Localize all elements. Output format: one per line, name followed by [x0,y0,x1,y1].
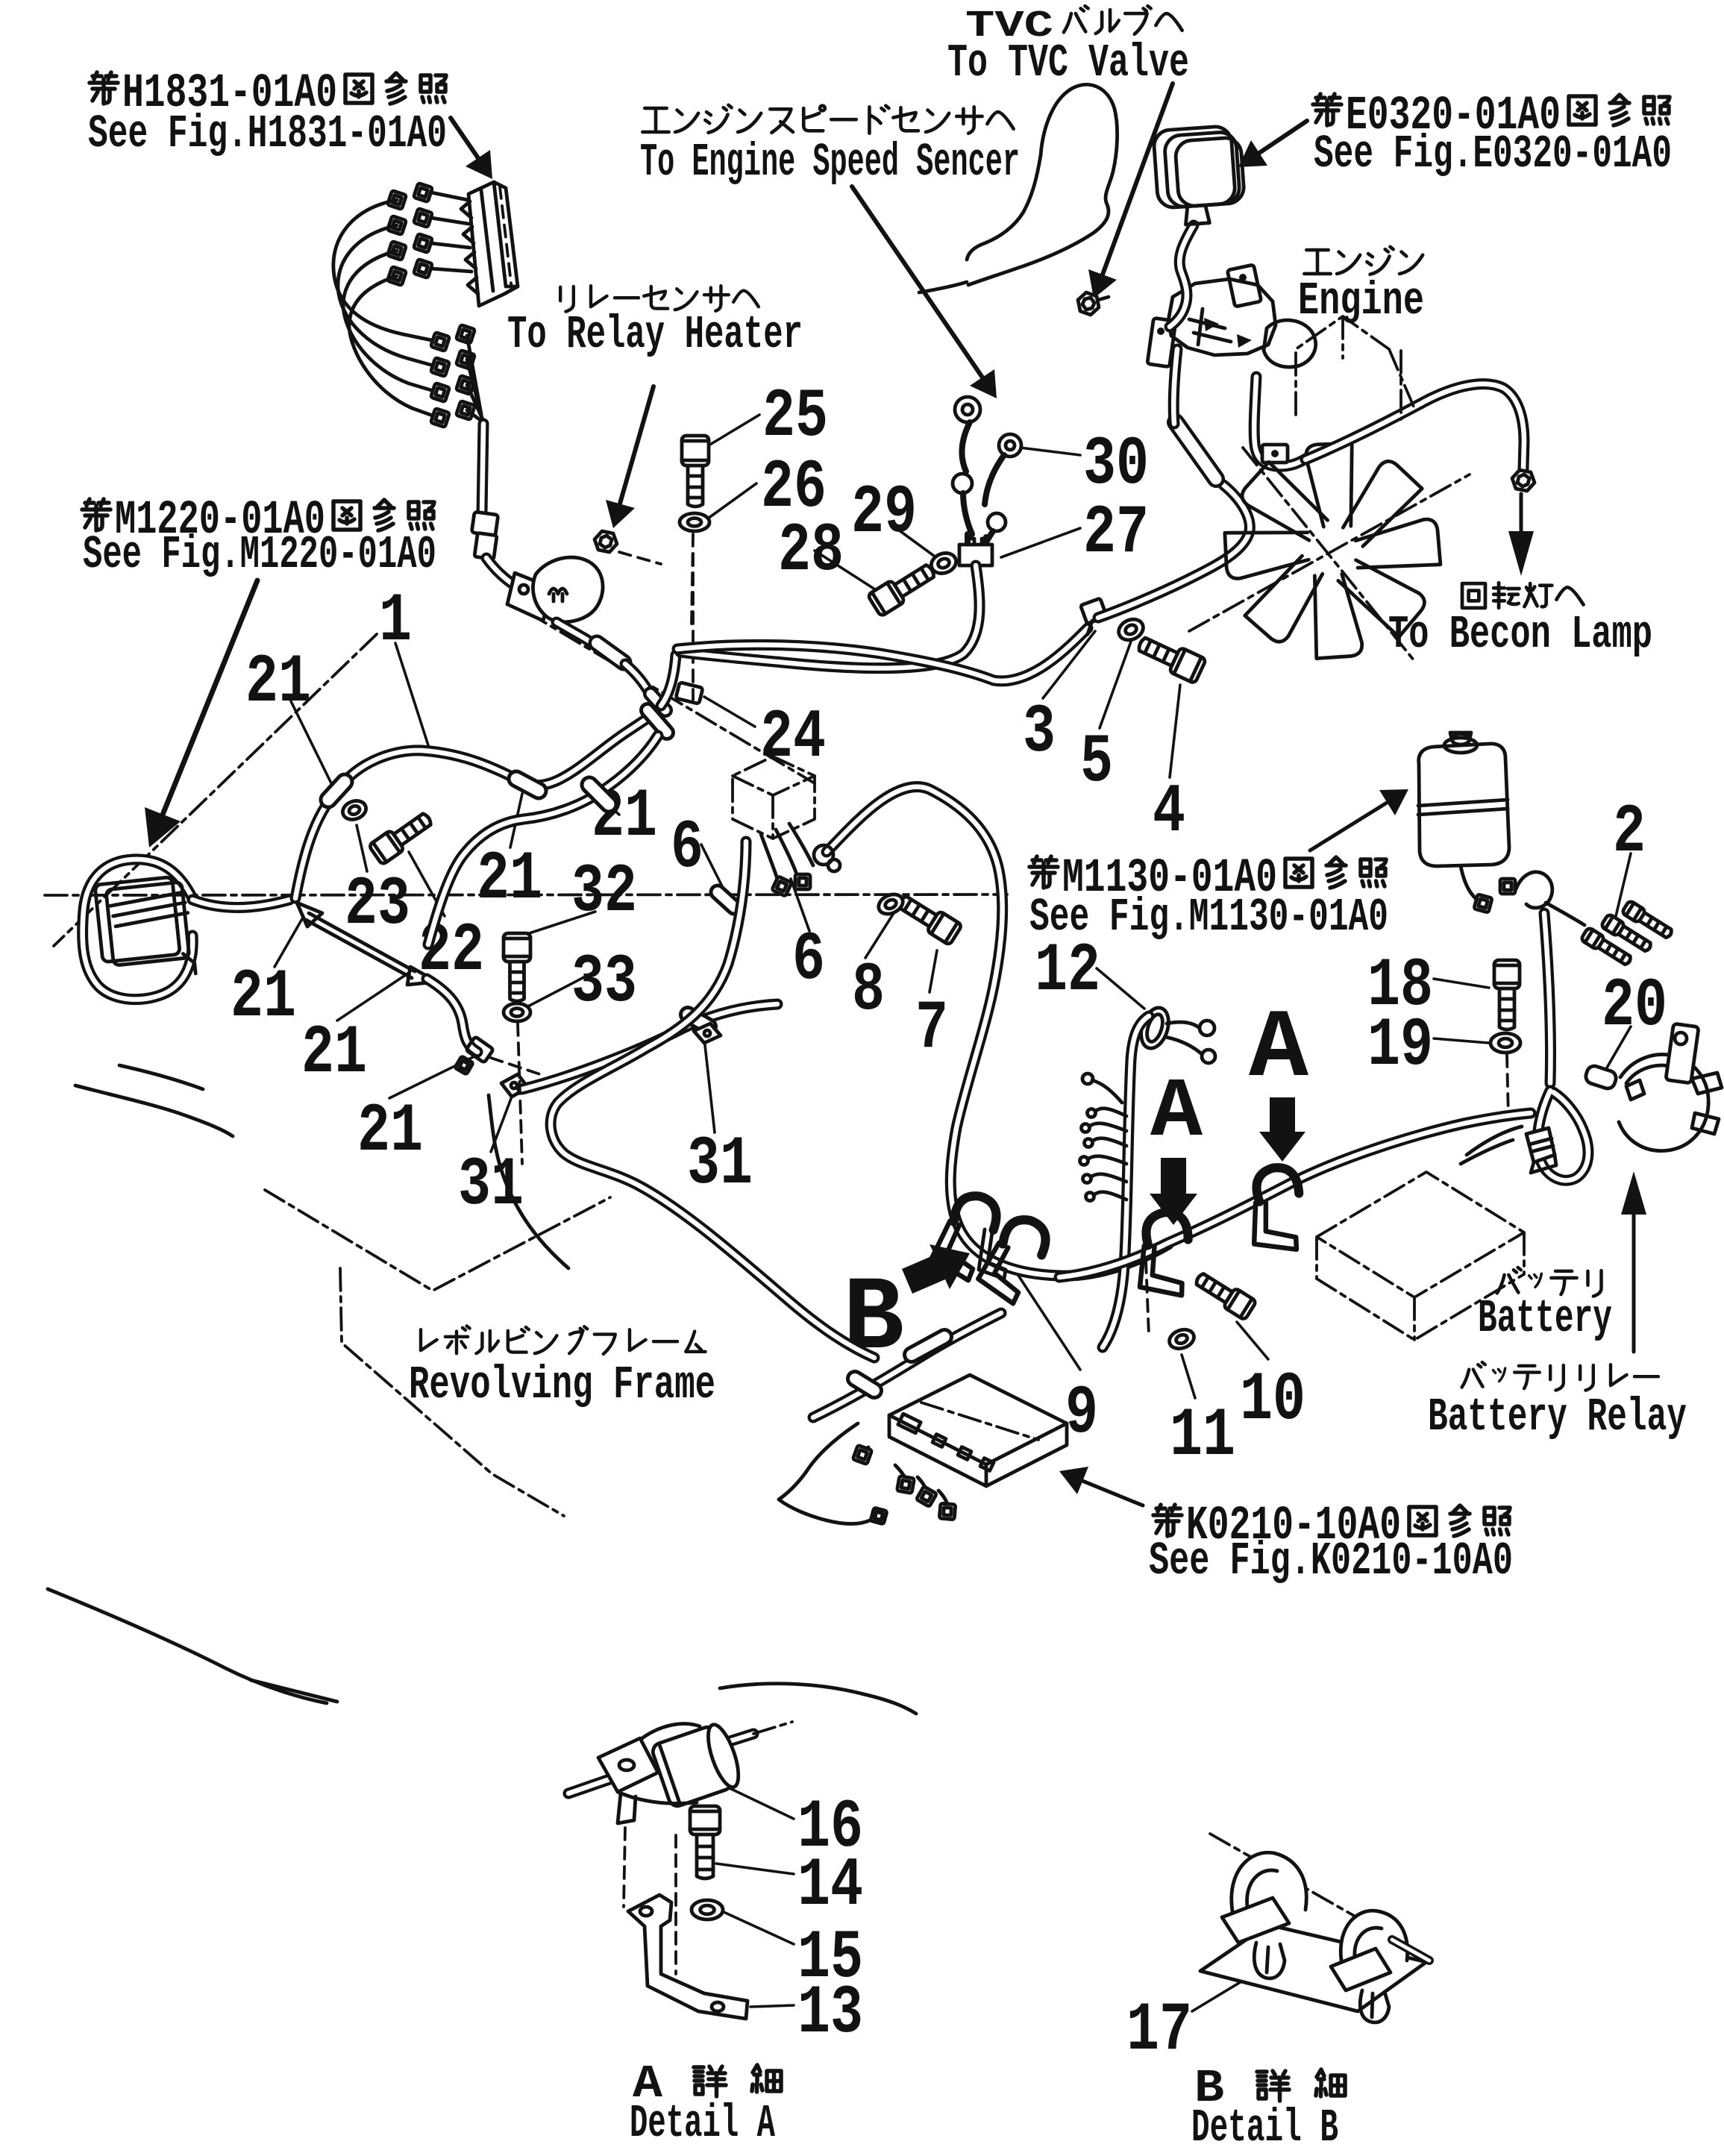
svg-text:A: A [1150,1065,1203,1160]
svg-text:12: 12 [1035,932,1100,1010]
svg-text:31: 31 [687,1125,753,1203]
svg-text:A: A [1249,995,1309,1105]
svg-text:32: 32 [571,853,637,931]
svg-text:See Fig.H1831-01A0: See Fig.H1831-01A0 [88,107,447,160]
svg-text:Battery: Battery [1478,1292,1612,1345]
svg-text:4: 4 [1153,773,1185,851]
svg-text:To Relay Heater: To Relay Heater [507,308,803,361]
svg-text:17: 17 [1126,1991,1192,2069]
svg-text:1: 1 [379,582,412,660]
svg-text:21: 21 [245,643,311,721]
svg-text:16: 16 [797,1788,863,1867]
svg-text:28: 28 [778,512,844,590]
svg-text:29: 29 [851,474,917,552]
svg-text:33: 33 [571,943,637,1021]
svg-text:To Engine Speed Sencer: To Engine Speed Sencer [640,136,1020,189]
svg-text:To TVC Valve: To TVC Valve [947,37,1189,90]
svg-text:21: 21 [477,840,542,918]
svg-text:21: 21 [231,958,296,1036]
svg-text:Engine: Engine [1298,275,1424,328]
svg-text:20: 20 [1602,967,1667,1045]
svg-text:25: 25 [762,377,828,456]
svg-text:19: 19 [1367,1006,1433,1085]
svg-text:Battery Relay: Battery Relay [1428,1391,1687,1444]
svg-text:To Becon Lamp: To Becon Lamp [1388,608,1652,661]
svg-text:See Fig.K0210-10A0: See Fig.K0210-10A0 [1149,1535,1513,1588]
svg-text:9: 9 [1065,1374,1098,1453]
svg-text:31: 31 [458,1146,524,1224]
svg-text:6: 6 [792,921,825,999]
svg-text:27: 27 [1083,494,1149,572]
svg-text:11: 11 [1170,1397,1235,1475]
svg-text:10: 10 [1240,1361,1305,1439]
svg-text:7: 7 [915,989,948,1068]
svg-text:30: 30 [1083,425,1149,504]
svg-text:15: 15 [797,1919,863,1997]
svg-text:3: 3 [1023,693,1056,771]
svg-text:See Fig.M1220-01A0: See Fig.M1220-01A0 [83,528,436,581]
svg-text:6: 6 [671,809,703,887]
svg-text:21: 21 [357,1092,423,1171]
svg-text:Revolving Frame: Revolving Frame [409,1359,715,1411]
svg-text:Detail B: Detail B [1191,2102,1338,2155]
svg-text:21: 21 [301,1014,367,1092]
svg-text:Detail A: Detail A [630,2097,776,2150]
svg-text:See Fig.E0320-01A0: See Fig.E0320-01A0 [1314,128,1672,181]
svg-text:5: 5 [1080,723,1113,801]
svg-text:23: 23 [345,865,410,944]
svg-text:8: 8 [852,951,885,1030]
